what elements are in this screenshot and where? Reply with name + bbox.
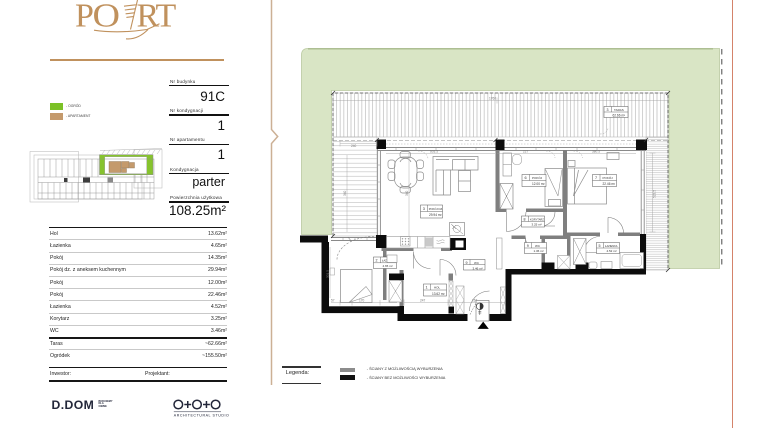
svg-text:227: 227 — [523, 150, 529, 154]
svg-text:3.25 m²: 3.25 m² — [532, 223, 542, 227]
svg-text:247: 247 — [420, 299, 426, 303]
svg-text:340: 340 — [343, 190, 347, 196]
svg-text:9: 9 — [466, 261, 468, 265]
svg-text:13.62 m²: 13.62 m² — [432, 292, 445, 296]
svg-text:POKÓJ: POKÓJ — [603, 175, 614, 180]
svg-text:603.5: 603.5 — [430, 150, 438, 154]
svg-text:1760: 1760 — [489, 97, 496, 101]
svg-text:4.52 m²: 4.52 m² — [607, 249, 617, 253]
svg-text:240: 240 — [351, 144, 357, 148]
svg-text:3: 3 — [607, 108, 609, 112]
svg-text:340: 340 — [405, 190, 409, 196]
svg-text:6: 6 — [525, 176, 527, 180]
svg-text:29.94 m²: 29.94 m² — [429, 213, 442, 217]
svg-text:12.00 m²: 12.00 m² — [532, 182, 545, 186]
svg-text:3: 3 — [423, 207, 425, 211]
svg-text:301.5: 301.5 — [326, 270, 330, 278]
svg-text:POKÓJ: POKÓJ — [532, 175, 543, 180]
svg-text:62.66 m²: 62.66 m² — [613, 113, 626, 117]
svg-text:170: 170 — [359, 298, 365, 302]
svg-text:HOL: HOL — [434, 286, 441, 290]
svg-text:1: 1 — [426, 286, 428, 290]
svg-text:3.46 m²: 3.46 m² — [473, 266, 483, 270]
svg-text:523.5: 523.5 — [653, 190, 657, 198]
svg-text:TARAS: TARAS — [614, 108, 624, 112]
svg-text:2: 2 — [376, 259, 378, 263]
svg-text:22.46 m²: 22.46 m² — [603, 182, 616, 186]
svg-text:8: 8 — [524, 217, 526, 221]
svg-text:WC: WC — [474, 261, 480, 265]
svg-text:57: 57 — [331, 298, 335, 302]
svg-text:267: 267 — [472, 299, 478, 303]
svg-text:5: 5 — [599, 244, 601, 248]
svg-text:WC: WC — [535, 244, 541, 248]
svg-text:7: 7 — [595, 176, 597, 180]
svg-text:1.36 m²: 1.36 m² — [534, 249, 544, 253]
svg-text:KORYTARZ: KORYTARZ — [530, 217, 544, 221]
svg-text:ŁAZIENKA: ŁAZIENKA — [605, 244, 618, 248]
svg-text:4.65 m²: 4.65 m² — [383, 264, 393, 268]
svg-text:9: 9 — [527, 244, 529, 248]
svg-text:380.5: 380.5 — [592, 150, 600, 154]
